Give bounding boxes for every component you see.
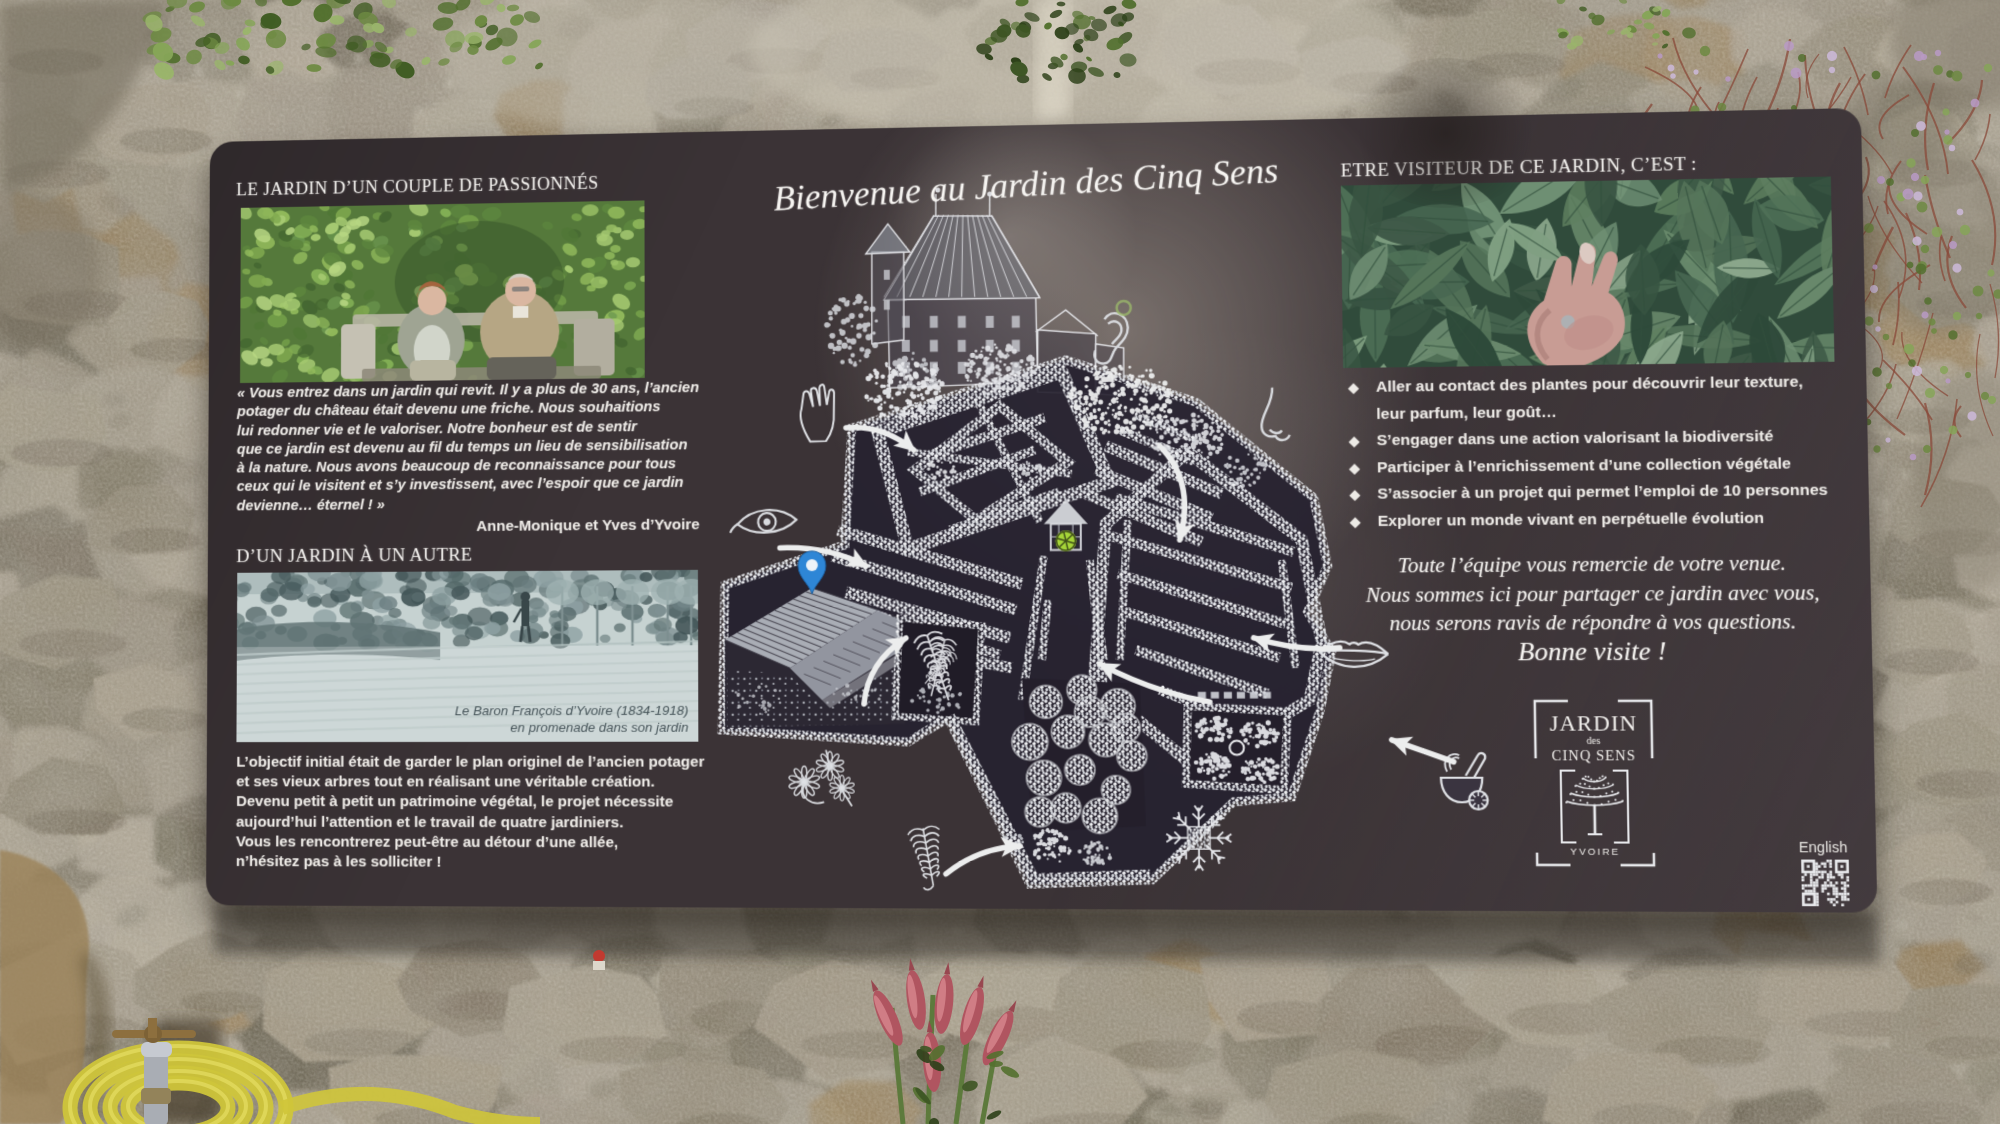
svg-text:des: des (1587, 736, 1601, 747)
svg-text:YVOIRE: YVOIRE (1570, 846, 1620, 857)
svg-text:JARDIN: JARDIN (1549, 710, 1637, 736)
svg-text:CINQ SENS: CINQ SENS (1552, 747, 1636, 763)
